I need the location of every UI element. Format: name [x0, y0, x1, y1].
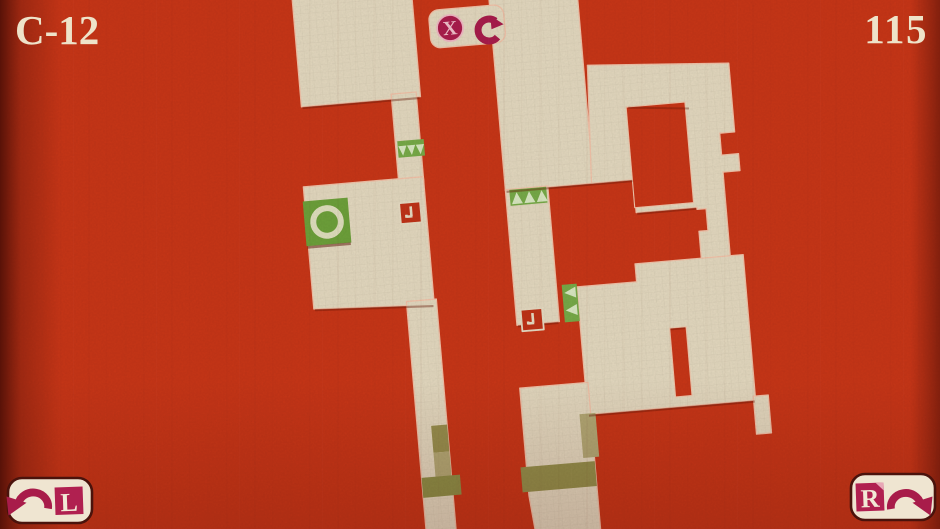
svg-text:L: L — [60, 488, 78, 518]
svg-text:C-12: C-12 — [15, 7, 99, 53]
svg-text:115: 115 — [864, 6, 928, 52]
svg-text:R: R — [860, 484, 880, 514]
